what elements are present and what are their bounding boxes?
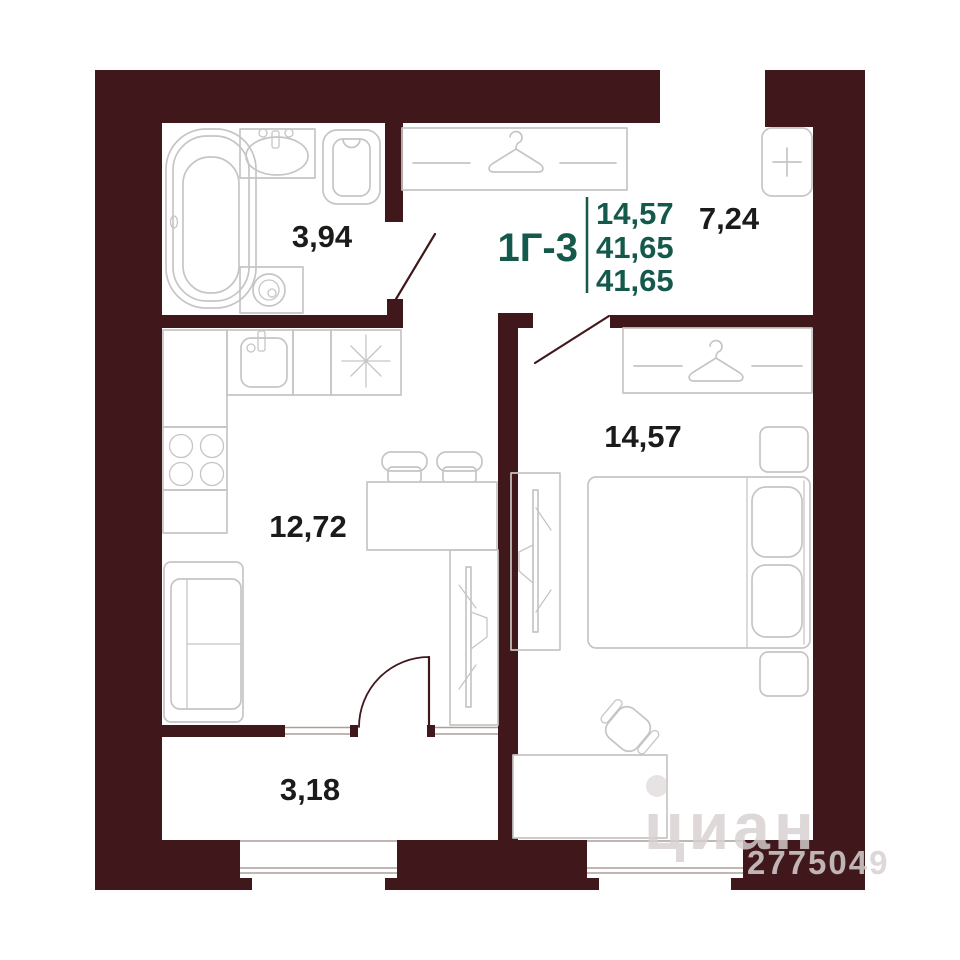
sparkle-icon — [342, 335, 390, 387]
wall-partition-post-1 — [350, 725, 358, 737]
sofa-icon — [164, 562, 243, 722]
wall-right — [813, 70, 865, 890]
floor-plan-svg: 1Г-3 14,57 41,65 41,65 3,94 7,24 14,57 1… — [0, 0, 960, 960]
sink-icon — [240, 129, 315, 178]
wall-bathroom-right-stub — [387, 299, 403, 316]
wall-kitchen-top — [162, 315, 403, 328]
nightstand — [760, 427, 808, 472]
room-area-hallway: 7,24 — [699, 201, 760, 236]
floor-plan-page: 1Г-3 14,57 41,65 41,65 3,94 7,24 14,57 1… — [0, 0, 960, 960]
unit-title-block: 1Г-3 14,57 41,65 41,65 — [498, 196, 674, 298]
balcony-window-step-left — [240, 878, 252, 890]
wall-bottom-left — [95, 840, 240, 890]
watermark-id: 2775049 — [747, 844, 889, 881]
unit-title: 1Г-3 — [498, 226, 579, 270]
electrical-panel-icon — [762, 128, 812, 196]
balcony-exterior-window — [240, 841, 397, 873]
bedroom-window-step-left — [587, 878, 599, 890]
bed-icon — [588, 477, 810, 648]
balcony-door — [359, 657, 429, 727]
wall-partition-post-2 — [427, 725, 435, 737]
pillow-icon — [752, 565, 802, 637]
hanger-icon — [489, 132, 543, 172]
bathroom-door-leaf — [396, 234, 435, 299]
wall-top-left — [95, 70, 660, 123]
pillow-icon — [752, 487, 802, 557]
hallway-furniture — [402, 128, 812, 196]
bedroom-furniture — [511, 328, 812, 838]
bedroom-wardrobe — [623, 328, 812, 393]
walls — [95, 70, 865, 890]
stat-total-area: 41,65 — [596, 230, 674, 265]
hall-wardrobe — [402, 128, 627, 190]
wall-balcony-partition — [162, 725, 285, 737]
bedroom-tv-icon — [511, 473, 560, 650]
nightstand — [760, 652, 808, 696]
room-area-bedroom: 14,57 — [604, 419, 682, 454]
desk-chair-icon — [594, 696, 661, 761]
wall-bottom-center — [397, 840, 587, 890]
balcony-partition-window-right — [435, 728, 498, 735]
room-area-kitchen-living: 12,72 — [269, 509, 347, 544]
bedroom-door-leaf — [535, 316, 609, 363]
kitchen-cabinet-middle — [293, 330, 331, 395]
bar-stool-icon — [382, 452, 427, 483]
bar-stool-icon — [437, 452, 482, 483]
bar-table — [367, 482, 497, 550]
room-area-bathroom: 3,94 — [292, 219, 353, 254]
room-area-balcony: 3,18 — [280, 772, 340, 807]
wall-left — [95, 70, 162, 840]
toilet-icon — [323, 130, 380, 204]
balcony-window-step-right — [385, 878, 397, 890]
hob-cabinet — [331, 330, 401, 395]
bedroom-window-step-right — [731, 878, 743, 890]
hanger-icon — [689, 341, 743, 381]
wall-bathroom-right-upper — [385, 123, 403, 222]
stat-total-area-2: 41,65 — [596, 263, 674, 298]
kitchen-cabinet-left-top — [163, 330, 227, 427]
living-tv-icon — [450, 550, 498, 725]
balcony-partition-window-left — [285, 728, 350, 735]
stove-icon — [163, 427, 227, 490]
wall-bedroom-top — [610, 315, 813, 328]
kitchen-cabinet-left-bottom — [163, 490, 227, 533]
wall-bedroom-left-stub — [518, 313, 533, 328]
stat-living-area: 14,57 — [596, 196, 674, 231]
balcony-door-swing-arc — [359, 657, 429, 727]
kitchen-sink-icon — [227, 330, 293, 395]
bathtub-icon — [166, 129, 256, 308]
